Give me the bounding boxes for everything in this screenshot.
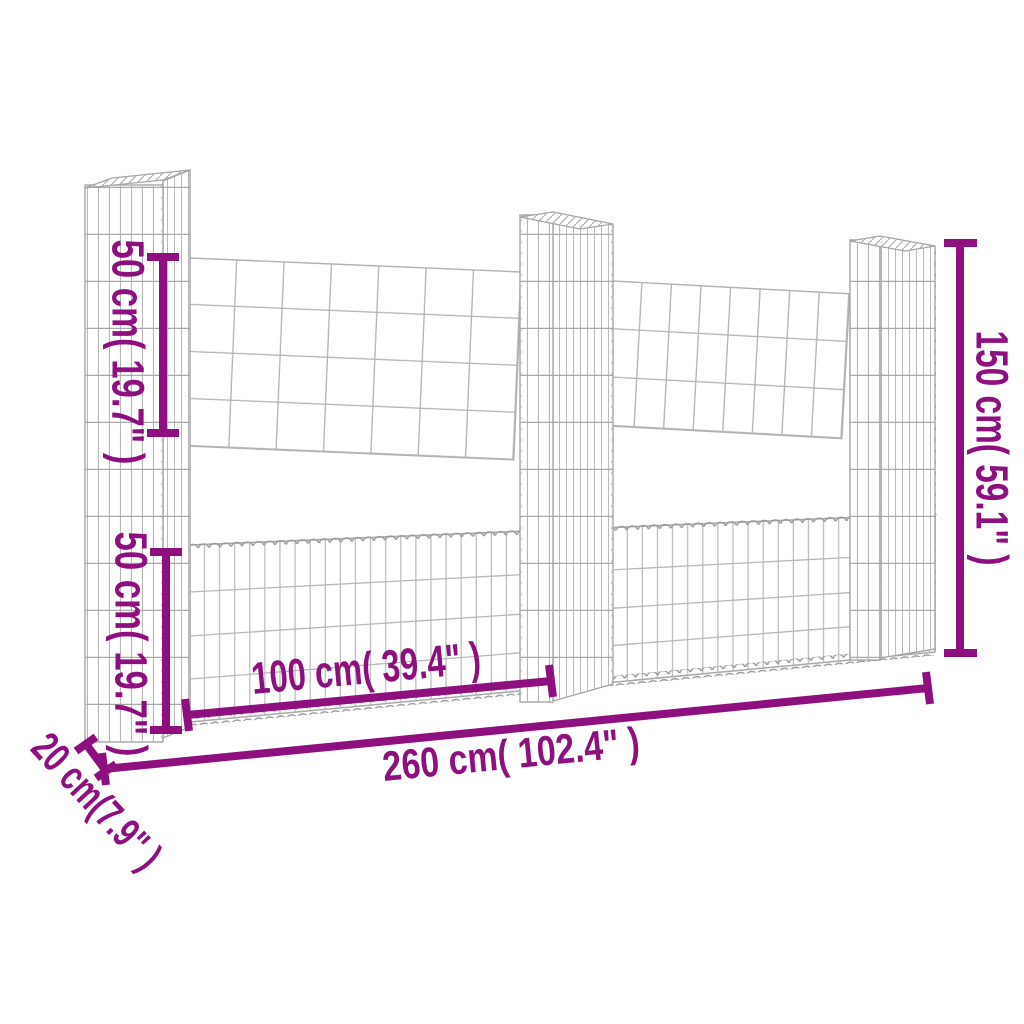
gabion-post-middle — [516, 212, 617, 703]
dimension-label: 50 cm( 19.7" ) — [106, 532, 157, 757]
dimension-label: 50 cm( 19.7" ) — [103, 240, 154, 465]
fence-mesh-panel-right — [605, 281, 849, 439]
diagram-stage: 50 cm( 19.7" ) 50 cm( 19.7" ) 150 cm( 59… — [0, 0, 1024, 1024]
dimension-total-height: 150 cm( 59.1" ) — [944, 243, 1018, 653]
fence-mesh-panel-left — [182, 258, 522, 460]
gabion-dimension-diagram: 50 cm( 19.7" ) 50 cm( 19.7" ) 150 cm( 59… — [0, 0, 1024, 1024]
dimension-label: 150 cm( 59.1" ) — [967, 331, 1018, 566]
gabion-post-right — [846, 236, 939, 661]
